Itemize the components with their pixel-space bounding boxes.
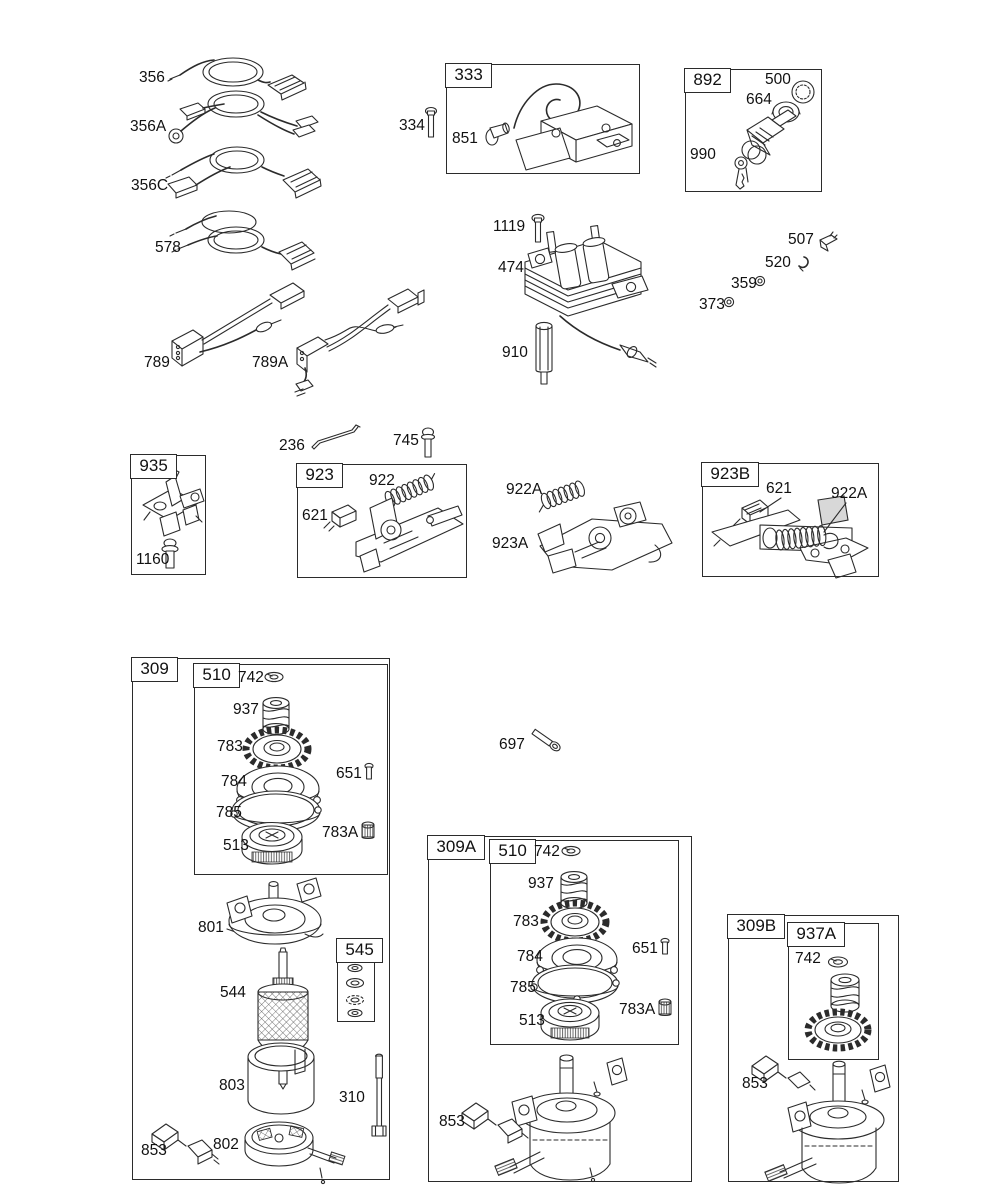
callout-853c: 853 [742, 1076, 768, 1092]
callout-513b: 513 [519, 1013, 545, 1029]
part-742b-washer [562, 846, 580, 855]
callout-910: 910 [502, 345, 528, 361]
callout-853a: 853 [141, 1143, 167, 1159]
callout-742c: 742 [795, 951, 821, 967]
part-621a-terminal [324, 505, 356, 531]
callout-474: 474 [498, 260, 524, 276]
callout-507: 507 [788, 232, 814, 248]
callout-356C: 356C [131, 178, 168, 194]
callout-937a: 937 [233, 702, 259, 718]
part-545-washers [347, 964, 364, 1016]
box-label-937A: 937A [787, 922, 845, 947]
part-935-bracket [143, 470, 204, 536]
callout-651b: 651 [632, 941, 658, 957]
part-923A-bracket-assembly [538, 502, 672, 573]
callout-801: 801 [198, 920, 224, 936]
callout-784a: 784 [221, 774, 247, 790]
callout-742a: 742 [238, 670, 264, 686]
part-578-wire-harness [170, 211, 315, 270]
callout-664: 664 [746, 92, 772, 108]
callout-334: 334 [399, 118, 425, 134]
part-742c-washer [829, 957, 848, 967]
callout-310: 310 [339, 1090, 365, 1106]
callout-783Aa: 783A [322, 825, 358, 841]
box-label-545: 545 [336, 938, 382, 963]
part-373-nut [724, 297, 733, 306]
part-801-drive-cap [227, 878, 323, 944]
callout-853b: 853 [439, 1114, 465, 1130]
box-label-309A: 309A [427, 835, 485, 860]
part-310-bolt [372, 1054, 386, 1136]
part-356C-wire-harness [166, 147, 321, 198]
callout-697: 697 [499, 737, 525, 753]
part-783b-gear [544, 903, 606, 941]
callout-990: 990 [690, 147, 716, 163]
part-520-clip [799, 257, 808, 271]
callout-851: 851 [452, 131, 478, 147]
callout-544: 544 [220, 985, 246, 1001]
callout-783a: 783 [217, 739, 243, 755]
box-label-892: 892 [684, 68, 730, 93]
callout-923A: 923A [492, 536, 528, 552]
callout-922A1: 922A [506, 482, 542, 498]
part-1119-screw [532, 214, 544, 242]
part-910-stud [536, 322, 552, 384]
callout-803: 803 [219, 1078, 245, 1094]
part-783Ab-bushing [659, 999, 671, 1016]
box-label-935: 935 [130, 454, 176, 479]
callout-520: 520 [765, 255, 791, 271]
part-334-screw [426, 108, 437, 138]
part-742a-washer [265, 672, 283, 681]
callout-783Ab: 783A [619, 1002, 655, 1018]
part-802-brush-cap [245, 1122, 345, 1184]
part-783Aa-bushing [362, 822, 374, 839]
part-651b-screw [661, 938, 669, 954]
box-label-923: 923 [296, 463, 342, 488]
callout-937b: 937 [528, 876, 554, 892]
part-356-wire-harness [168, 58, 306, 100]
part-923-bracket-assembly [356, 498, 463, 572]
callout-745: 745 [393, 433, 419, 449]
box-label-923B: 923B [701, 462, 759, 487]
callout-651a: 651 [336, 766, 362, 782]
callout-922: 922 [369, 473, 395, 489]
part-513b-clutch-drum [541, 999, 599, 1040]
part-785b-cover [531, 965, 619, 1003]
callout-785b: 785 [510, 980, 536, 996]
callout-578: 578 [155, 240, 181, 256]
callout-789: 789 [144, 355, 170, 371]
box-label-333: 333 [445, 63, 491, 88]
callout-356: 356 [139, 70, 165, 86]
part-333-ignition-coil [514, 84, 632, 170]
part-356A-wire-harness [169, 91, 318, 143]
callout-783b: 783 [513, 914, 539, 930]
callout-621a: 621 [302, 508, 328, 524]
callout-784b: 784 [517, 949, 543, 965]
part-937A-gear [808, 1012, 868, 1048]
part-851-spark-boot [486, 122, 510, 145]
box-label-510b: 510 [489, 839, 535, 864]
callout-356A: 356A [130, 119, 166, 135]
callout-513a: 513 [223, 838, 249, 854]
part-937A-helical-pinion [831, 974, 859, 1012]
callout-1119: 1119 [493, 219, 525, 235]
part-474-ignition-armature [525, 226, 656, 367]
callout-922A2: 922A [831, 486, 867, 502]
callout-785a: 785 [216, 805, 242, 821]
box-label-309B: 309B [727, 914, 785, 939]
part-892-key-switch-body [747, 110, 796, 155]
part-789A-harness [295, 289, 424, 396]
callout-802: 802 [213, 1137, 239, 1153]
part-309B-starter-motor [765, 1061, 890, 1183]
callout-621b: 621 [766, 481, 792, 497]
part-500-switch-face [792, 81, 814, 103]
part-697-bolt [531, 728, 561, 753]
box-label-510a: 510 [193, 663, 239, 688]
part-309A-starter-motor [495, 1055, 627, 1182]
callout-789A: 789A [252, 355, 288, 371]
callout-500: 500 [765, 72, 791, 88]
part-236-link-rod [312, 425, 360, 449]
part-513a-clutch-drum [242, 823, 302, 865]
part-783a-gear [246, 730, 308, 768]
box-label-309: 309 [131, 657, 177, 682]
callout-236: 236 [279, 438, 305, 454]
callout-373: 373 [699, 297, 725, 313]
callout-359: 359 [731, 276, 757, 292]
part-745-screw [422, 428, 435, 457]
parts-diagram-page: 333892935923923B309510545309A510309B937A… [0, 0, 1000, 1200]
part-651a-screw [365, 763, 373, 779]
callout-1160: 1160 [136, 552, 169, 568]
part-507-switch [820, 232, 837, 251]
callout-742b: 742 [534, 844, 560, 860]
